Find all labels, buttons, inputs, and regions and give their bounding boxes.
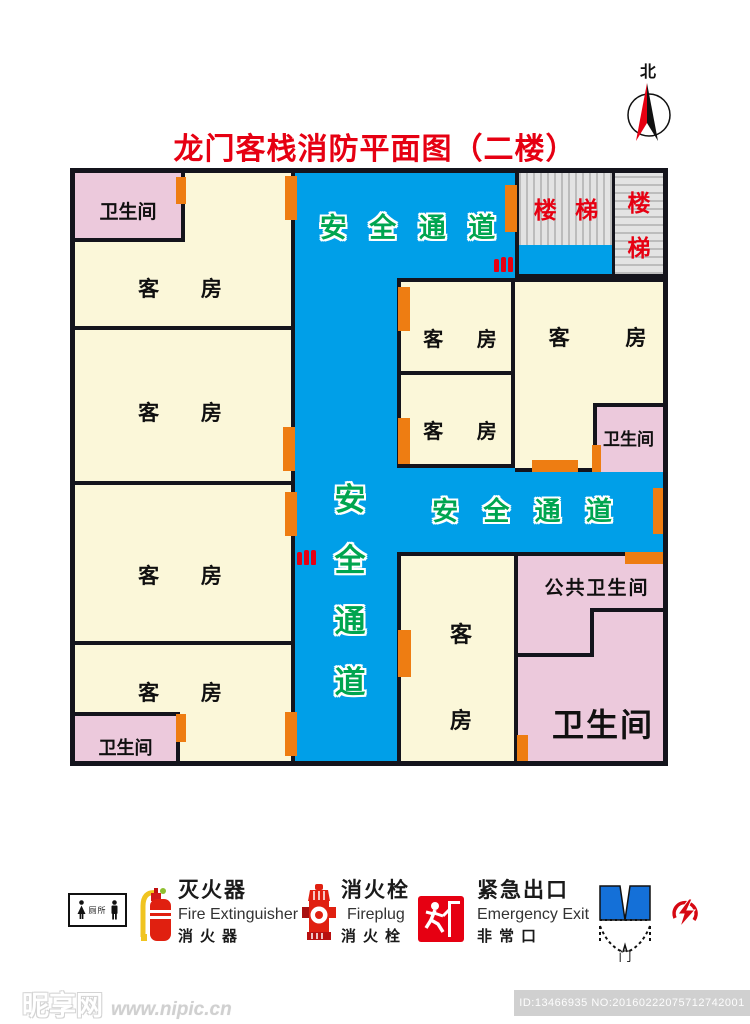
corridor-char: 通: [330, 591, 370, 652]
room-label: 客 房: [100, 560, 260, 590]
fire-extinguisher-icon: [138, 884, 174, 946]
emergency-exit-icon: [418, 896, 464, 942]
door-marker: [398, 287, 410, 331]
corridor-middle-label: 安 全 通 道: [427, 491, 617, 528]
toilet-sign-icon: 厕所: [68, 893, 127, 927]
legend-extinguisher-alt: 消火器: [178, 928, 298, 945]
legend-fireplug-en: Fireplug: [341, 906, 410, 924]
man-icon: [110, 900, 119, 920]
room-label-char: 客: [447, 617, 475, 649]
watermark-url: www.nipic.cn: [111, 999, 232, 1021]
floorplan: 楼 梯 楼 梯 安 全 通 道 安 全 通 道 安 全 通 道 卫生间 客 房 …: [70, 168, 668, 766]
room-label: 客 房: [100, 273, 260, 303]
fire-safety-floorplan-poster: 北 龙门客栈消防平面图（二楼） 楼 梯 楼 梯: [0, 0, 750, 1024]
page-title: 龙门客栈消防平面图（二楼）: [0, 124, 750, 168]
corridor-char: 全: [330, 530, 370, 591]
room-label: 客 房: [405, 415, 515, 444]
watermark-id-bar: ID:13466935 NO:20160222075712742001: [514, 990, 750, 1016]
door-marker: [398, 630, 411, 677]
door-marker: [532, 460, 578, 472]
door-marker: [285, 492, 297, 536]
room-label-char: 房: [447, 703, 475, 735]
door-marker: [625, 552, 663, 564]
stairs-char: 梯: [615, 226, 663, 271]
legend-extinguisher-zh: 灭火器: [178, 880, 298, 902]
room-label: 客 房: [100, 677, 260, 707]
door-symbol-label: 门: [618, 949, 631, 962]
legend-exit-alt: 非常口: [477, 928, 589, 945]
door-marker: [653, 488, 663, 534]
room-label: 卫生间: [75, 197, 181, 224]
legend-exit-en: Emergency Exit: [477, 906, 589, 924]
legend-extinguisher: 灭火器 Fire Extinguisher 消火器: [178, 880, 298, 945]
room-label: 卫生间: [75, 734, 176, 760]
room-label: 客 房: [100, 397, 260, 427]
stairs-label-vertical: 楼 梯: [615, 181, 663, 271]
stairs-label: 楼 梯: [523, 191, 609, 225]
woman-icon: [77, 900, 86, 920]
stairs-char: 楼: [615, 181, 663, 226]
watermark-site: 昵享网 www.nipic.cn: [22, 984, 232, 1023]
bathroom-step-wall: [590, 608, 663, 612]
watermark-id-text: ID:13466935 NO:20160222075712742001: [519, 997, 744, 1009]
corridor-top-label: 安 全 通 道: [310, 206, 505, 245]
extinguisher-markers: [494, 257, 513, 272]
room-label: 卫生间: [530, 700, 676, 746]
door-marker: [505, 185, 517, 232]
corridor-stairs-landing: [519, 245, 612, 274]
corridor-char: 安: [330, 469, 370, 530]
brand-emblem-icon: [668, 898, 704, 928]
compass-north-label: 北: [640, 63, 656, 81]
room-label: 卫生间: [594, 425, 663, 450]
legend-fireplug: 消火栓 Fireplug 消火栓: [341, 880, 410, 945]
legend-exit: 紧急出口 Emergency Exit 非常口: [477, 880, 589, 945]
door-marker: [176, 177, 186, 204]
door-marker: [283, 427, 295, 471]
legend-extinguisher-en: Fire Extinguisher: [178, 906, 298, 924]
corridor-char: 道: [330, 652, 370, 713]
legend-exit-zh: 紧急出口: [477, 880, 589, 902]
corridor-vertical-label: 安 全 通 道: [330, 469, 370, 713]
door-marker: [398, 418, 410, 464]
door-marker: [176, 714, 186, 742]
extinguisher-markers: [297, 550, 316, 565]
room-label: 客 房: [535, 322, 660, 352]
bathroom-step-wall: [590, 608, 594, 657]
door-marker: [285, 176, 297, 220]
fireplug-icon: [301, 884, 337, 944]
toilet-label: 厕所: [89, 905, 107, 916]
watermark-site-name: 昵享网: [22, 984, 103, 1023]
room-label: 公共卫生间: [527, 573, 667, 600]
door-marker: [285, 712, 297, 756]
room-label: 客 房: [405, 323, 515, 352]
legend-fireplug-alt: 消火栓: [341, 928, 410, 945]
door-marker: [592, 445, 601, 472]
bathroom-step-wall: [518, 653, 594, 657]
door-symbol-icon: 门: [596, 884, 654, 962]
door-marker: [517, 735, 528, 761]
legend-fireplug-zh: 消火栓: [341, 880, 410, 902]
